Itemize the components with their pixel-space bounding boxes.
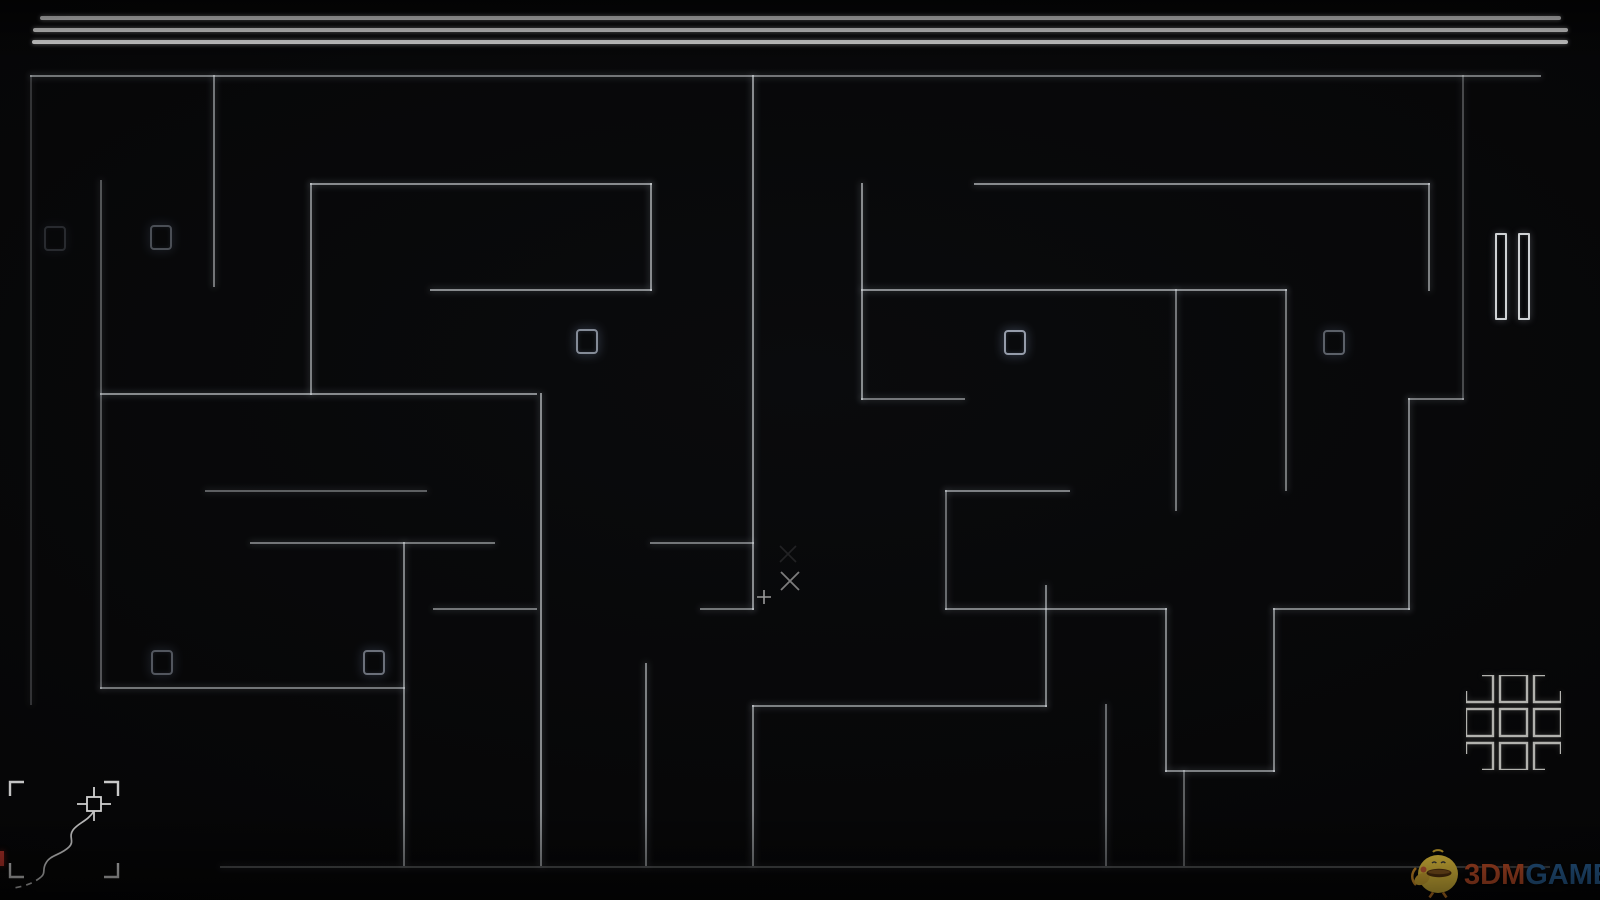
collectible-square xyxy=(150,225,172,250)
maze-wall xyxy=(310,183,652,185)
minimap-viewfinder xyxy=(0,755,140,900)
red-edge-tick xyxy=(0,851,4,866)
maze-wall xyxy=(310,183,312,395)
bracket-corner-icon xyxy=(10,782,24,796)
header-line xyxy=(32,40,1568,44)
collectible-square xyxy=(1323,330,1345,355)
maze-wall xyxy=(645,663,647,866)
maze-wall xyxy=(752,75,754,610)
maze-wall xyxy=(30,75,32,705)
maze-wall xyxy=(1045,585,1047,707)
maze-wall xyxy=(205,490,427,492)
maze-wall xyxy=(1408,398,1464,400)
maze-wall xyxy=(540,393,542,866)
maze-wall xyxy=(1273,608,1410,610)
pause-bar-left xyxy=(1495,233,1507,320)
maze-wall xyxy=(30,75,1541,77)
maze-wall xyxy=(1165,608,1167,772)
game-viewport[interactable]: 3DMGAME xyxy=(0,0,1600,900)
collectible-square xyxy=(1004,330,1026,355)
maze-wall xyxy=(700,608,754,610)
header-line xyxy=(33,28,1568,32)
maze-wall xyxy=(100,180,102,689)
collectible-square xyxy=(576,329,598,354)
maze-wall xyxy=(945,490,947,610)
maze-wall xyxy=(433,608,537,610)
maze-wall xyxy=(220,866,1550,868)
collectible-square xyxy=(151,650,173,675)
maze-wall xyxy=(100,393,537,395)
maze-wall xyxy=(945,490,1070,492)
bracket-corner-icon xyxy=(104,782,118,796)
maze-wall xyxy=(650,183,652,291)
pause-bar-right xyxy=(1518,233,1530,320)
maze-wall xyxy=(1273,608,1275,772)
x-marker-icon xyxy=(778,569,802,593)
maze-wall xyxy=(1165,770,1275,772)
bracket-corner-icon xyxy=(104,863,118,877)
maze-wall xyxy=(1183,770,1185,866)
grid-menu-icon[interactable] xyxy=(1466,675,1561,770)
ghost-x-marker-icon xyxy=(777,543,799,565)
maze-wall xyxy=(650,542,754,544)
watermark-logo: 3DMGAME xyxy=(1408,848,1600,900)
maze-wall xyxy=(752,705,1047,707)
maze-wall xyxy=(430,289,652,291)
maze-wall xyxy=(945,608,1167,610)
maze-wall xyxy=(974,183,1430,185)
brand-game: GAME xyxy=(1525,859,1600,891)
maze-wall xyxy=(213,75,215,287)
chick-mascot-icon xyxy=(1408,848,1464,900)
vignette-overlay xyxy=(0,0,1600,900)
maze-wall xyxy=(1105,704,1107,866)
collectible-square xyxy=(44,226,66,251)
collectible-square xyxy=(363,650,385,675)
bracket-corner-icon xyxy=(10,863,24,877)
crosshair-cursor-icon xyxy=(749,582,779,612)
maze-wall xyxy=(861,183,863,400)
path-trail-dashed xyxy=(14,877,41,888)
player-marker xyxy=(87,797,101,811)
header-line xyxy=(40,16,1561,20)
maze-wall xyxy=(1285,289,1287,491)
maze-wall xyxy=(1408,398,1410,610)
watermark-text: 3DMGAME xyxy=(1464,850,1600,900)
brand-3dm: 3DM xyxy=(1464,859,1525,891)
maze-wall xyxy=(1428,183,1430,291)
maze-wall xyxy=(752,705,754,866)
maze-wall xyxy=(861,289,1287,291)
maze-wall xyxy=(1175,289,1177,511)
path-trail xyxy=(41,811,94,877)
maze-wall xyxy=(403,542,405,866)
maze-wall xyxy=(250,542,495,544)
maze-wall xyxy=(100,687,405,689)
maze-wall xyxy=(1462,75,1464,400)
maze-wall xyxy=(861,398,965,400)
